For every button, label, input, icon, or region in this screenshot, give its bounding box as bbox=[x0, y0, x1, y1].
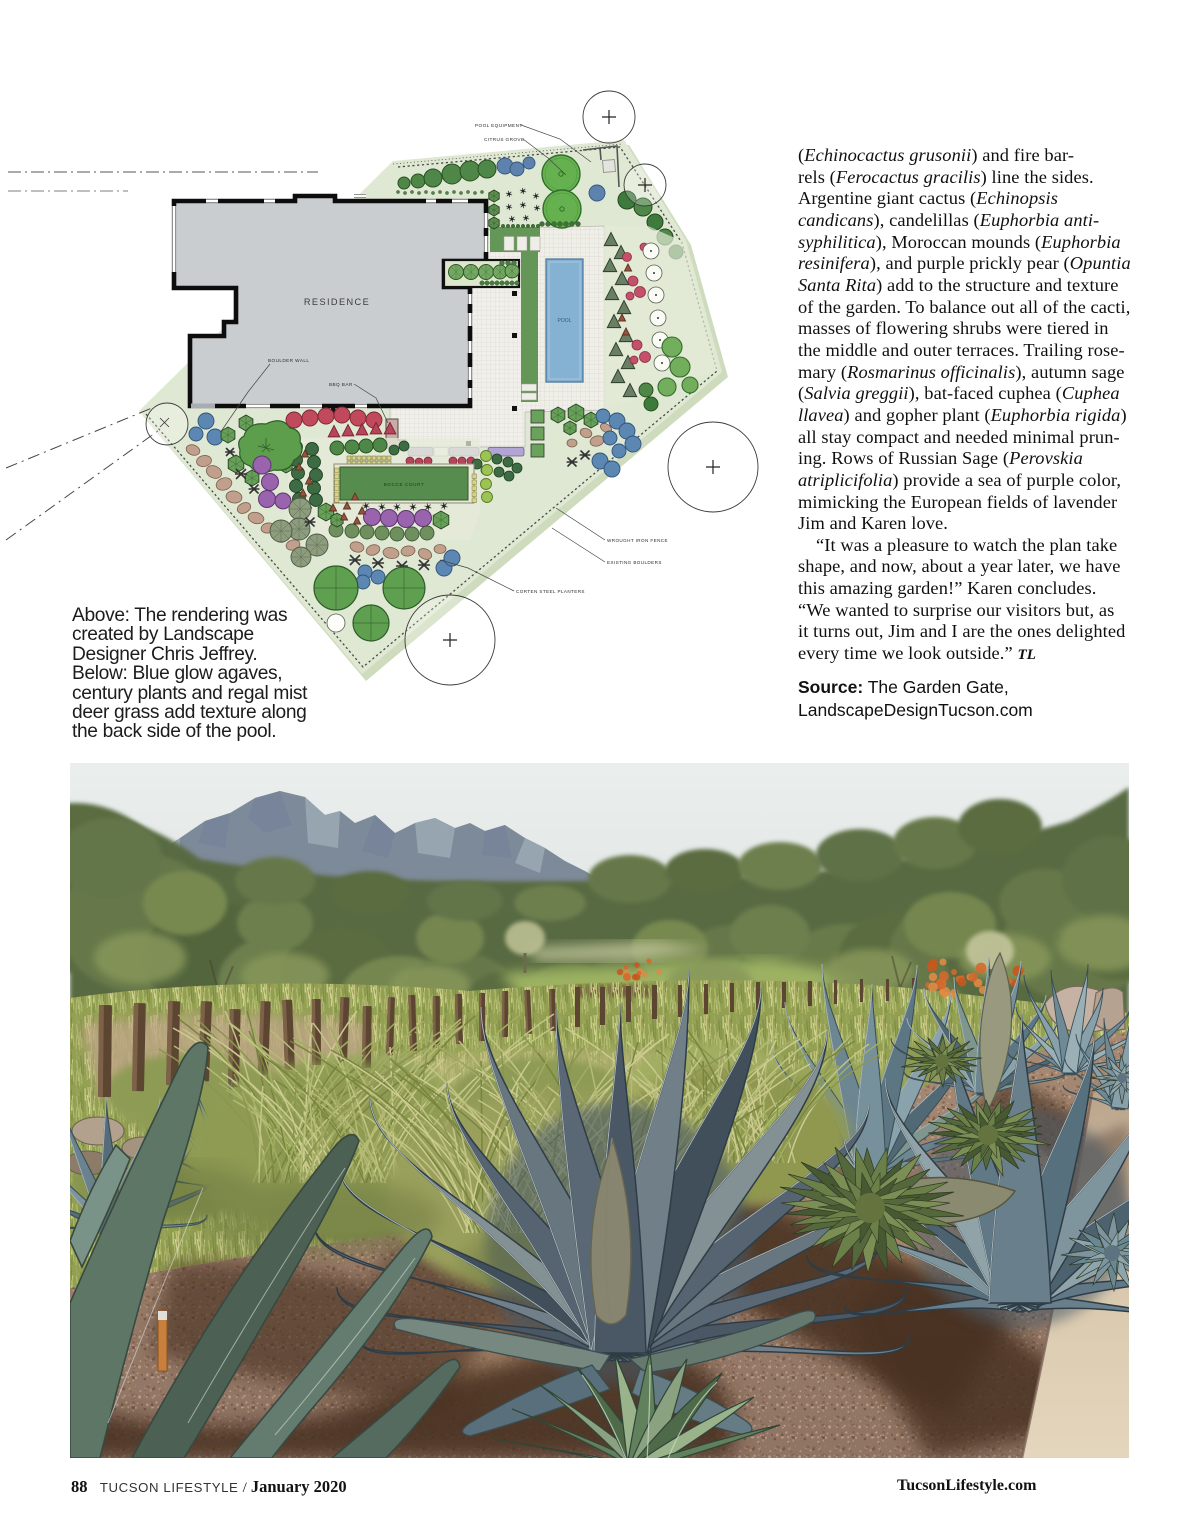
svg-text:BOULDER WALL: BOULDER WALL bbox=[268, 358, 309, 363]
svg-text:POOL EQUIPMENT: POOL EQUIPMENT bbox=[475, 123, 523, 128]
svg-text:CITRUS GROVE: CITRUS GROVE bbox=[484, 137, 524, 142]
svg-text:CORTEN STEEL PLANTERS: CORTEN STEEL PLANTERS bbox=[516, 589, 585, 594]
svg-text:BOCCE COURT: BOCCE COURT bbox=[384, 482, 424, 487]
svg-text:RESIDENCE: RESIDENCE bbox=[304, 297, 370, 307]
svg-text:BBQ BAR: BBQ BAR bbox=[329, 382, 353, 387]
svg-text:EXISTING BOULDERS: EXISTING BOULDERS bbox=[607, 560, 662, 565]
svg-text:WROUGHT IRON FENCE: WROUGHT IRON FENCE bbox=[607, 538, 668, 543]
svg-text:POOL: POOL bbox=[558, 318, 572, 324]
